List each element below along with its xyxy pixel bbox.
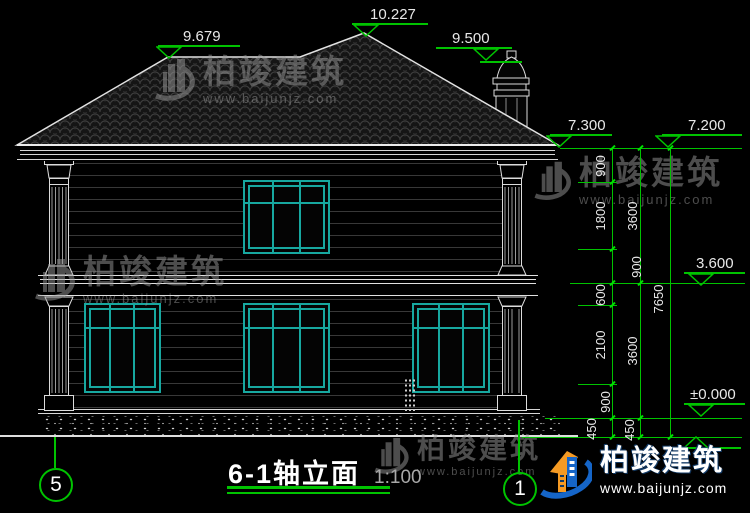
level-left-hip-label: 9.679 [183,28,221,45]
dim-label: 2100 [593,315,609,375]
level-eave-left-label: 7.300 [568,117,606,134]
downspout-hatch [404,378,415,411]
level-marker-icon [353,24,379,37]
eave-fascia [17,144,558,161]
dim-label: 3600 [625,321,641,381]
watermark-brand: 柏竣建筑 [203,55,347,88]
level-ground-label: ±0.000 [690,386,736,403]
level-marker-icon [546,135,572,148]
dim-label: 900 [598,372,614,432]
axis-number: 5 [50,473,62,497]
brand-logo-icon [536,442,592,500]
level-floor2-label: 3.600 [696,255,734,272]
watermark-logo-icon [528,155,572,207]
dim-label: 1800 [593,186,609,246]
watermark-url: www.baijunjz.com [83,291,227,306]
axis-leader-left [54,437,56,468]
window-1f-left-inner-frame [89,308,156,388]
level-marker-icon [655,135,681,148]
level-ridge-label: 10.227 [370,6,416,23]
level-marker-icon [688,273,714,286]
column-right [497,158,527,412]
plinth-line-top [38,409,540,410]
brand-url: www.baijunjz.com [600,480,727,496]
level-chimney-label: 9.500 [452,30,490,47]
watermark-brand: 柏竣建筑 [83,255,227,288]
watermark-brand: 柏竣建筑 [417,435,541,463]
watermark-logo-icon [148,52,196,108]
elevation-drawing-canvas: 柏竣建筑 www.baijunjz.com 柏竣建筑 www.baijunjz.… [0,0,750,513]
plinth-line-bottom [38,413,540,414]
window-1f-middle-inner-frame [248,308,325,388]
window-2f [243,180,330,254]
window-1f-middle [243,303,330,393]
axis-number: 1 [514,477,526,501]
brand-logo: 柏竣建筑 www.baijunjz.com [536,442,727,500]
watermark-url: www.baijunjz.com [203,91,347,106]
dim-label: 3600 [625,186,641,246]
watermark-wall: 柏竣建筑 www.baijunjz.com [28,252,227,308]
dim-label: 7650 [651,269,667,329]
watermark-logo-icon [28,252,76,308]
brand-name: 柏竣建筑 [600,447,727,476]
title-underline [227,486,390,489]
window-1f-left [84,303,161,393]
level-marker-icon [156,46,182,59]
watermark-roof: 柏竣建筑 www.baijunjz.com [148,52,347,108]
axis-bubble-1: 1 [503,472,537,506]
dim-label: 900 [629,237,645,297]
level-marker-icon [688,404,714,417]
axis-bubble-5: 5 [39,468,73,502]
window-1f-right [412,303,490,393]
level-eave-right-label: 7.200 [688,117,726,134]
window-1f-right-inner-frame [417,308,485,388]
level-marker-icon [473,48,499,61]
title-underline [227,492,390,494]
axis-leader-right [518,420,520,472]
window-2f-inner-frame [248,185,325,249]
dim-chain-3 [670,148,671,438]
